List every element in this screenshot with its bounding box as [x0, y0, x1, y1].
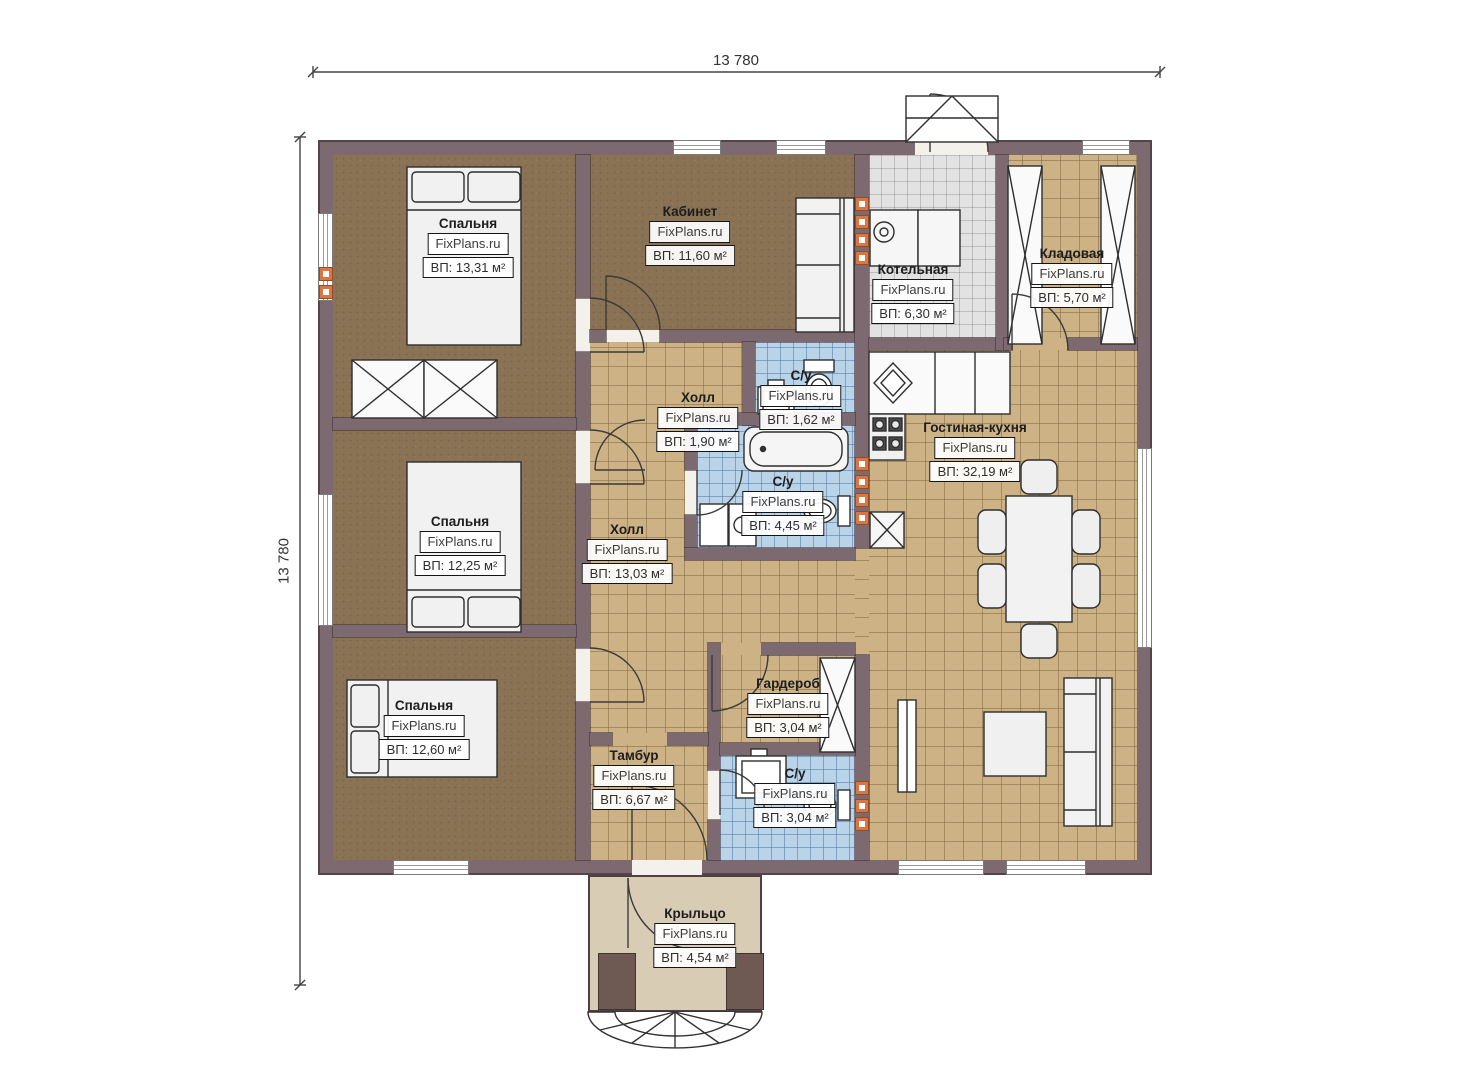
watermark: FixPlans.ru — [742, 491, 823, 513]
room-area: ВП: 32,19 м² — [930, 461, 1021, 483]
watermark: FixPlans.ru — [872, 279, 953, 301]
room-area: ВП: 3,04 м² — [753, 807, 836, 829]
room-area: ВП: 6,67 м² — [592, 789, 675, 811]
room-area: ВП: 5,70 м² — [1030, 287, 1113, 309]
wall-segment — [590, 330, 606, 342]
room-label-boiler-room: Котельная FixPlans.ru ВП: 6,30 м² — [871, 262, 954, 324]
door-opening — [685, 470, 697, 515]
vent-marker — [856, 198, 868, 210]
wall-segment — [1004, 338, 1012, 350]
room-label-bedroom-2: Спальня FixPlans.ru ВП: 12,25 м² — [415, 514, 506, 576]
room-label-bedroom-3: Спальня FixPlans.ru ВП: 12,60 м² — [379, 698, 470, 760]
porch-door-opening — [632, 860, 702, 875]
room-label-hall-main: Холл FixPlans.ru ВП: 13,03 м² — [582, 522, 673, 584]
room-area: ВП: 4,45 м² — [741, 515, 824, 537]
room-name: С/у — [784, 766, 805, 781]
room-area: ВП: 6,30 м² — [871, 303, 954, 325]
vent-marker — [320, 286, 332, 298]
floor-passage — [855, 548, 869, 655]
door-opening — [576, 648, 590, 702]
watermark: FixPlans.ru — [657, 407, 738, 429]
room-name: Кабинет — [663, 204, 718, 219]
wall-segment — [720, 743, 855, 755]
wall-segment — [708, 820, 720, 860]
wall-segment — [685, 515, 697, 548]
room-name: Крыльцо — [664, 906, 725, 921]
vent-marker — [856, 234, 868, 246]
room-label-living-kitchen: Гостиная-кухня FixPlans.ru ВП: 32,19 м² — [923, 420, 1026, 482]
wall-segment — [668, 733, 708, 745]
wall-segment — [333, 625, 576, 637]
wall-segment — [685, 548, 855, 560]
room-area: ВП: 1,90 м² — [656, 431, 739, 453]
watermark: FixPlans.ru — [593, 765, 674, 787]
room-name: Холл — [681, 390, 715, 405]
room-label-porch: Крыльцо FixPlans.ru ВП: 4,54 м² — [653, 906, 736, 968]
room-area: ВП: 1,62 м² — [759, 409, 842, 431]
watermark: FixPlans.ru — [654, 923, 735, 945]
watermark: FixPlans.ru — [419, 531, 500, 553]
wall-segment — [333, 418, 576, 430]
room-label-wc-top: С/у FixPlans.ru ВП: 1,62 м² — [759, 368, 842, 430]
room-area: ВП: 11,60 м² — [645, 245, 735, 267]
room-area: ВП: 13,31 м² — [423, 257, 514, 279]
room-name: Гардероб — [756, 676, 820, 691]
vent-marker — [856, 252, 868, 264]
wall-segment — [855, 155, 869, 548]
entry-canopy — [906, 96, 998, 142]
vent-marker — [320, 268, 332, 280]
door-opening — [1012, 338, 1068, 350]
room-label-office: Кабинет FixPlans.ru ВП: 11,60 м² — [645, 204, 735, 266]
dimension-left-label: 13 780 — [276, 538, 293, 584]
room-name: С/у — [790, 368, 811, 383]
window — [393, 860, 469, 875]
vent-marker — [856, 512, 868, 524]
watermark: FixPlans.ru — [383, 715, 464, 737]
wall-segment — [869, 338, 1000, 350]
watermark: FixPlans.ru — [586, 539, 667, 561]
wall-segment — [660, 330, 855, 342]
vent-marker — [856, 800, 868, 812]
room-label-wc-bottom: С/у FixPlans.ru ВП: 3,04 м² — [753, 766, 836, 828]
window — [318, 494, 333, 626]
floor-bedroom-1 — [333, 155, 576, 418]
vent-marker — [856, 216, 868, 228]
watermark: FixPlans.ru — [754, 783, 835, 805]
room-name: Спальня — [439, 216, 497, 231]
room-area: ВП: 12,25 м² — [415, 555, 506, 577]
room-label-wardrobe: Гардероб FixPlans.ru ВП: 3,04 м² — [746, 676, 829, 738]
window — [776, 140, 826, 155]
room-name: Спальня — [431, 514, 489, 529]
room-name: Гостиная-кухня — [923, 420, 1026, 435]
porch-post-left — [598, 953, 636, 1010]
watermark: FixPlans.ru — [747, 693, 828, 715]
room-name: Холл — [610, 522, 644, 537]
door-opening — [576, 430, 590, 484]
room-label-wc-main: С/у FixPlans.ru ВП: 4,45 м² — [741, 474, 824, 536]
room-label-hall-small: Холл FixPlans.ru ВП: 1,90 м² — [656, 390, 739, 452]
porch-steps — [588, 1012, 762, 1048]
room-label-vestibule: Тамбур FixPlans.ru ВП: 6,67 м² — [592, 748, 675, 810]
wall-segment — [708, 643, 720, 770]
vent-marker — [856, 818, 868, 830]
room-label-bedroom-1: Спальня FixPlans.ru ВП: 13,31 м² — [423, 216, 514, 278]
room-name: Спальня — [395, 698, 453, 713]
room-area: ВП: 12,60 м² — [379, 739, 470, 761]
watermark: FixPlans.ru — [1031, 263, 1112, 285]
room-area: ВП: 3,04 м² — [746, 717, 829, 739]
watermark: FixPlans.ru — [934, 437, 1015, 459]
door-opening — [606, 330, 660, 342]
watermark: FixPlans.ru — [760, 385, 841, 407]
room-area: ВП: 4,54 м² — [653, 947, 736, 969]
room-name: С/у — [772, 474, 793, 489]
floor-plan: 13 780 13 780 — [0, 0, 1473, 1080]
door-opening — [576, 298, 590, 352]
vent-marker — [856, 476, 868, 488]
watermark: FixPlans.ru — [649, 221, 730, 243]
window — [673, 140, 721, 155]
window — [898, 860, 984, 875]
wall-segment — [576, 352, 590, 430]
room-name: Котельная — [878, 262, 949, 277]
vent-marker — [856, 782, 868, 794]
vent-marker — [856, 458, 868, 470]
dimension-left-line — [294, 132, 306, 990]
wall-segment — [576, 702, 590, 860]
room-name: Кладовая — [1040, 246, 1105, 261]
room-name: Тамбур — [610, 748, 659, 763]
wall-segment — [996, 155, 1008, 350]
room-area: ВП: 13,03 м² — [582, 563, 673, 585]
window — [1137, 448, 1152, 648]
door-opening — [708, 770, 720, 820]
window — [1006, 860, 1086, 875]
room-label-storage: Кладовая FixPlans.ru ВП: 5,70 м² — [1030, 246, 1113, 308]
entry-door-opening — [915, 140, 988, 155]
window — [1082, 140, 1130, 155]
wall-segment — [762, 643, 855, 655]
door-opening — [612, 733, 668, 745]
vent-marker — [856, 494, 868, 506]
wall-segment — [590, 733, 612, 745]
wall-segment — [1068, 338, 1137, 350]
wall-segment — [576, 155, 590, 298]
dimension-top-label: 13 780 — [713, 52, 759, 69]
watermark: FixPlans.ru — [427, 233, 508, 255]
